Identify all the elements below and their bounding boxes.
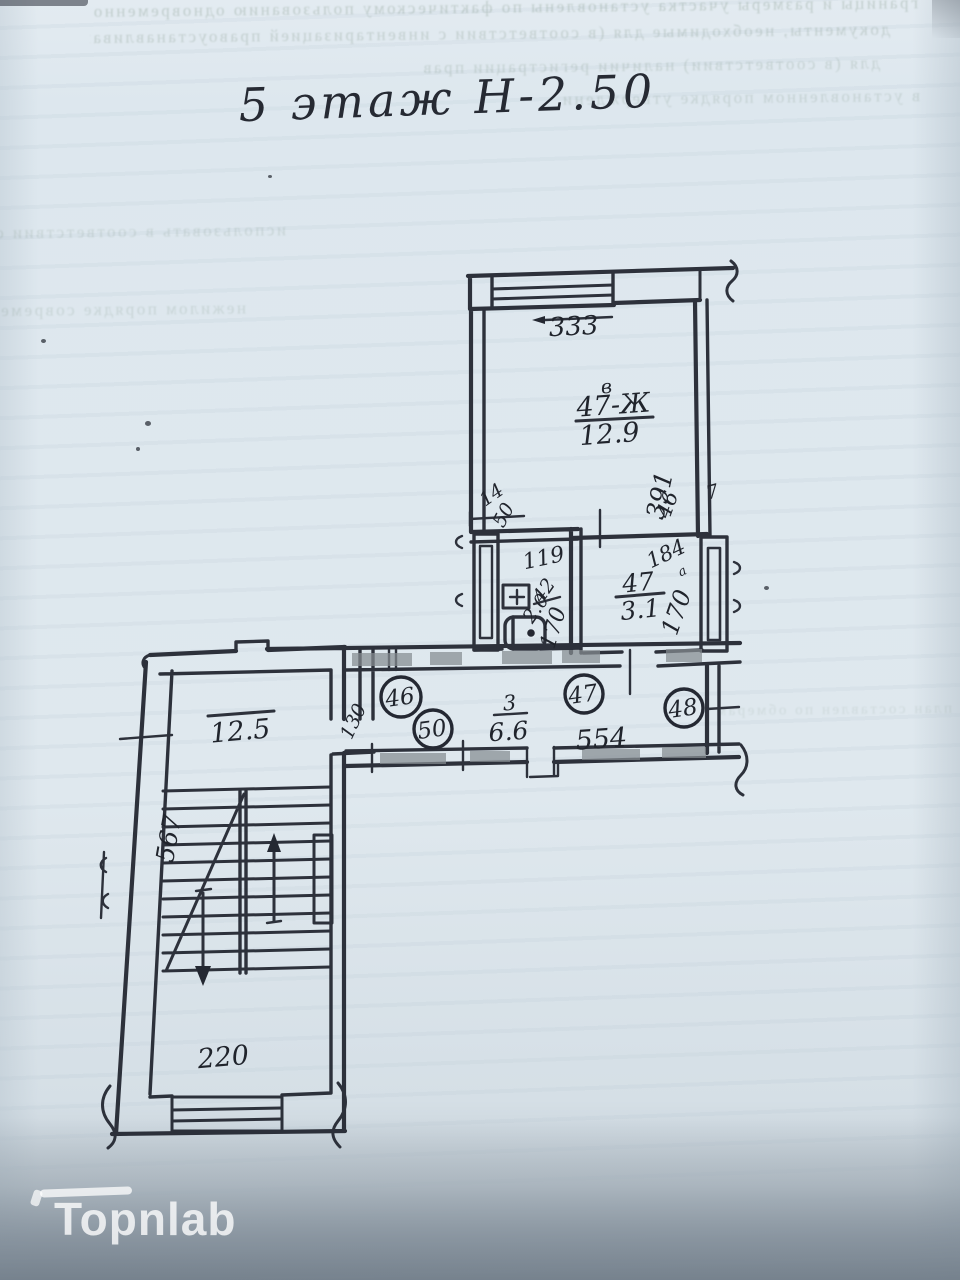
room-area-12-9: 12.9 xyxy=(578,417,640,452)
balcony-door-shaft-inner xyxy=(708,548,720,640)
landing-area-12-5: 12.5 xyxy=(209,713,272,749)
stair-window xyxy=(172,1097,282,1131)
hatch-segment xyxy=(666,649,702,662)
hatch-segment xyxy=(352,653,412,666)
vent-shaft-inner xyxy=(480,546,492,638)
window-dim-arrowhead xyxy=(532,316,545,324)
watermark-text: Topnlab xyxy=(54,1193,236,1245)
apartment-number-46: 46 xyxy=(383,683,417,713)
hatch-segment xyxy=(662,747,706,758)
apartment-number-50: 50 xyxy=(416,715,449,745)
ink-speck xyxy=(268,175,272,178)
room-superscript-a: а xyxy=(676,563,689,580)
apartment-number-47: 47 xyxy=(566,680,600,710)
toilet-dot xyxy=(527,629,535,637)
floor-plan-drawing: 5 этаж Н-2.50 333 в 47-Ж 12.9 391 14 50 … xyxy=(0,0,960,1280)
hatch-segment xyxy=(380,753,446,764)
hall-number-3: 3 xyxy=(502,691,517,716)
ink-speck xyxy=(145,421,151,426)
dim-130: 130 xyxy=(336,700,371,742)
apartment-number-48: 48 xyxy=(666,694,700,724)
plan-labels: 5 этаж Н-2.50 333 в 47-Ж 12.9 391 14 50 … xyxy=(150,64,722,1076)
hatch-segment xyxy=(470,751,510,762)
dim-567: 567 xyxy=(150,812,187,864)
dim-554: 554 xyxy=(575,722,629,757)
dim-7: 7 xyxy=(704,480,722,505)
hatch-segment xyxy=(502,651,552,664)
dim-220: 220 xyxy=(195,1040,250,1075)
balcony-door-shaft xyxy=(701,537,727,651)
hatch-segment xyxy=(430,652,462,665)
dim-119: 119 xyxy=(521,542,567,575)
window-and-detail-line xyxy=(103,261,748,1148)
hall-area-6-6: 6.6 xyxy=(488,716,530,748)
vent-shaft xyxy=(474,534,498,650)
ink-speck xyxy=(136,447,140,451)
watermark: Topnlab xyxy=(54,1192,236,1246)
ink-speck xyxy=(764,586,769,590)
page-title: 5 этаж Н-2.50 xyxy=(238,64,657,133)
stair-arrow-down-icon xyxy=(195,966,211,986)
plan-linework xyxy=(101,261,747,1148)
room-area-3-1: 3.1 xyxy=(619,593,662,626)
wall-line-secondary xyxy=(150,272,740,1097)
hatch-segment xyxy=(562,650,600,663)
dim-window-333: 333 xyxy=(548,311,599,344)
ink-speck xyxy=(41,339,46,343)
